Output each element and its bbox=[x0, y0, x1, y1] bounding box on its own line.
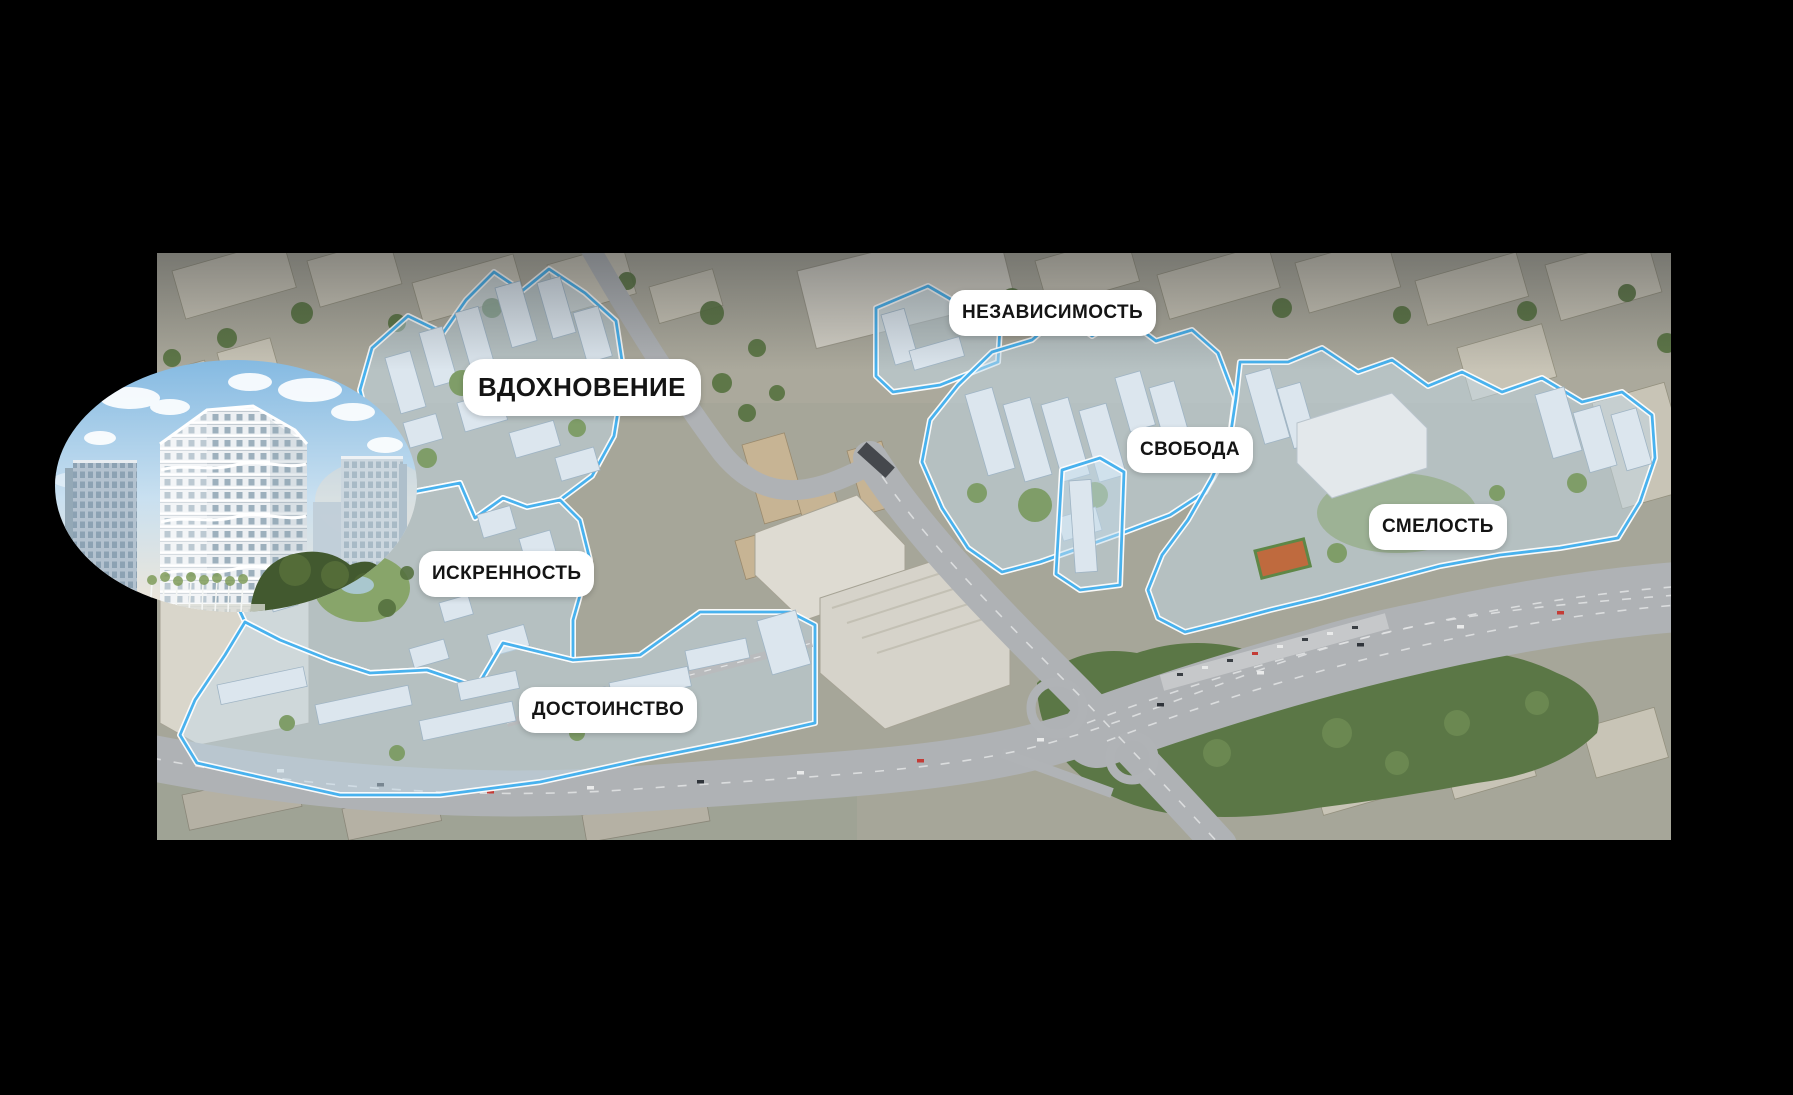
scene: ВДОХНОВЕНИЕ НЕЗАВИСИМОСТЬ СВОБОДА СМЕЛОС… bbox=[0, 0, 1793, 1095]
district-label-smelost[interactable]: СМЕЛОСТЬ bbox=[1369, 504, 1507, 550]
district-label-iskrennost[interactable]: ИСКРЕННОСТЬ bbox=[419, 551, 594, 597]
project-render-image bbox=[55, 360, 417, 612]
district-label-svoboda[interactable]: СВОБОДА bbox=[1127, 427, 1253, 473]
district-label-vdokhnovenie[interactable]: ВДОХНОВЕНИЕ bbox=[463, 359, 701, 416]
district-label-dostoinstvo[interactable]: ДОСТОИНСТВО bbox=[519, 687, 697, 733]
district-label-nezavisimost[interactable]: НЕЗАВИСИМОСТЬ bbox=[949, 290, 1156, 336]
project-render-inset bbox=[55, 360, 417, 612]
